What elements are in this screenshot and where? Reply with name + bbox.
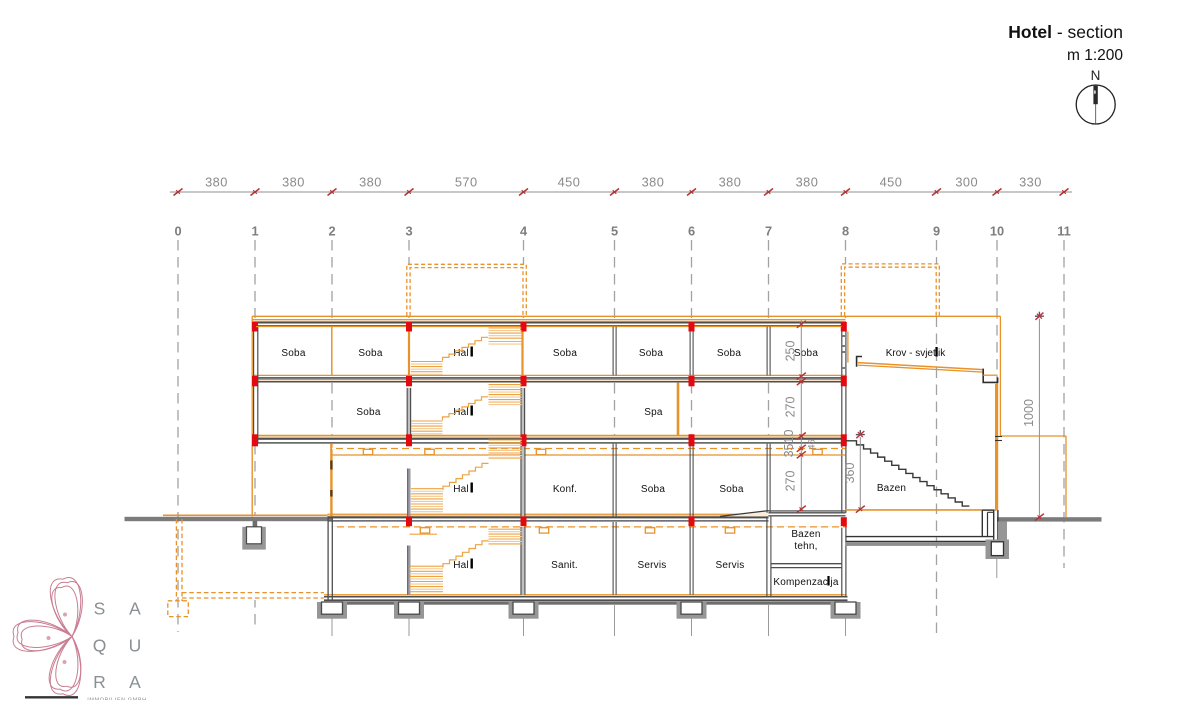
svg-text:m 1:200: m 1:200: [1067, 47, 1123, 64]
svg-text:Hal: Hal: [453, 484, 469, 495]
svg-text:Konf.: Konf.: [553, 484, 577, 495]
svg-text:2: 2: [328, 224, 335, 239]
svg-text:270: 270: [784, 397, 798, 418]
svg-text:3: 3: [405, 224, 412, 239]
svg-text:Soba: Soba: [358, 348, 382, 359]
svg-text:Soba: Soba: [717, 348, 741, 359]
svg-text:R: R: [93, 672, 106, 692]
svg-text:Soba: Soba: [719, 484, 743, 495]
svg-text:Sanit.: Sanit.: [551, 560, 578, 571]
svg-text:A: A: [129, 599, 141, 619]
svg-text:Hal: Hal: [453, 560, 469, 571]
svg-text:9: 9: [933, 224, 940, 239]
svg-text:380: 380: [719, 175, 742, 190]
svg-text:N: N: [1091, 68, 1101, 83]
svg-text:450: 450: [880, 175, 903, 190]
svg-text:7: 7: [765, 224, 772, 239]
svg-text:8: 8: [842, 224, 849, 239]
svg-text:5: 5: [611, 224, 618, 239]
svg-text:330: 330: [1019, 175, 1042, 190]
svg-text:3510: 3510: [782, 430, 796, 458]
svg-text:S: S: [94, 599, 106, 619]
svg-text:0: 0: [174, 224, 181, 239]
svg-text:380: 380: [642, 175, 665, 190]
svg-text:1: 1: [251, 224, 258, 239]
svg-text:Soba: Soba: [553, 348, 577, 359]
svg-text:360: 360: [843, 463, 857, 484]
svg-text:Bazen: Bazen: [877, 483, 906, 494]
svg-text:1000: 1000: [1022, 399, 1036, 427]
svg-text:Bazen: Bazen: [791, 529, 820, 540]
svg-text:300: 300: [955, 175, 978, 190]
svg-text:Q: Q: [93, 636, 107, 656]
svg-text:6: 6: [688, 224, 695, 239]
svg-text:270: 270: [784, 471, 798, 492]
svg-text:11: 11: [1057, 224, 1071, 239]
svg-text:450: 450: [558, 175, 581, 190]
svg-text:Servis: Servis: [716, 560, 745, 571]
svg-text:4: 4: [520, 224, 528, 239]
svg-text:10: 10: [990, 224, 1004, 239]
svg-text:Soba: Soba: [794, 348, 818, 359]
svg-text:Servis: Servis: [638, 560, 667, 571]
svg-text:46: 46: [807, 439, 818, 450]
svg-text:250: 250: [784, 341, 798, 362]
svg-text:380: 380: [359, 175, 382, 190]
svg-text:U: U: [129, 636, 142, 656]
svg-text:Soba: Soba: [356, 407, 380, 418]
svg-text:Hotel - section: Hotel - section: [1008, 22, 1123, 42]
svg-text:Soba: Soba: [641, 484, 665, 495]
svg-text:A: A: [129, 672, 141, 692]
svg-text:380: 380: [205, 175, 228, 190]
svg-text:Spa: Spa: [644, 407, 663, 418]
svg-text:tehn,: tehn,: [794, 541, 817, 552]
svg-text:Soba: Soba: [281, 348, 305, 359]
svg-text:570: 570: [455, 175, 478, 190]
svg-text:380: 380: [796, 175, 819, 190]
svg-text:380: 380: [282, 175, 305, 190]
svg-text:Soba: Soba: [639, 348, 663, 359]
